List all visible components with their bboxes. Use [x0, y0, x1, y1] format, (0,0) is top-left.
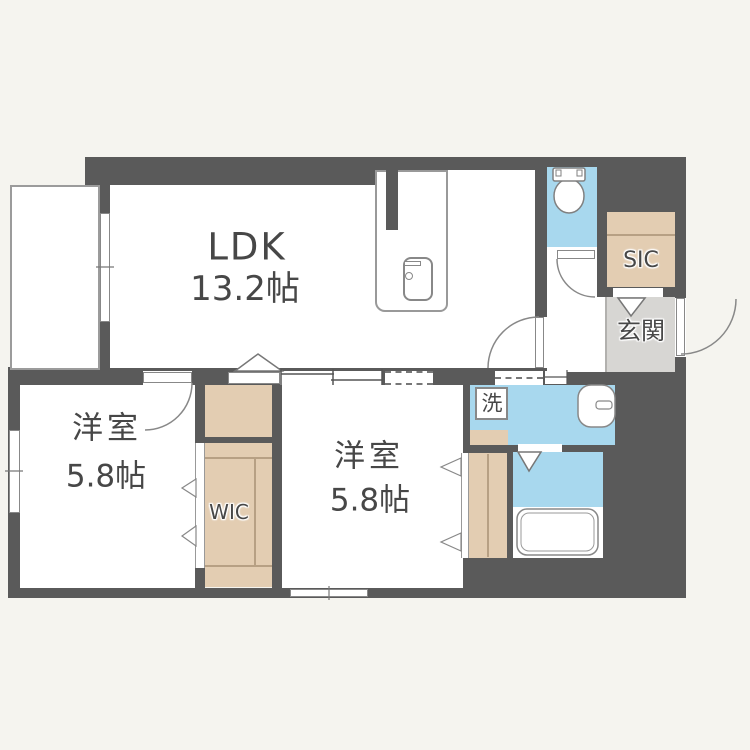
- bathtub-area: [513, 507, 603, 558]
- ldk-label: LDK: [207, 229, 286, 266]
- wall-opening-dashed: [385, 371, 433, 385]
- laundry-label: 洗: [482, 394, 503, 415]
- kitchen-faucet: [404, 261, 421, 266]
- kitchen-wall-stub: [386, 157, 398, 230]
- toilet-room-floor: [547, 167, 597, 247]
- wic-bifold-door: [195, 443, 205, 568]
- storage-door-leaf: [228, 372, 280, 384]
- sic-label: SIC: [623, 250, 659, 272]
- ldk-size-label: 13.2帖: [190, 272, 300, 306]
- wall: [195, 385, 205, 443]
- wall: [675, 157, 686, 598]
- bedroom2-size-label: 5.8帖: [330, 486, 410, 517]
- closet-bifold-door: [461, 453, 469, 558]
- wall: [195, 568, 205, 588]
- wall: [463, 558, 603, 598]
- bedroom2-label: 洋室: [334, 442, 404, 473]
- wall: [272, 367, 282, 588]
- balcony: [10, 185, 100, 370]
- closet-line: [487, 454, 489, 557]
- bathroom-floor: [513, 452, 603, 507]
- wic-label: WIC: [209, 502, 249, 522]
- kitchen-knob: [405, 272, 413, 280]
- bedroom1-label: 洋室: [72, 414, 142, 445]
- ldk-floor: [110, 185, 535, 368]
- bathroom-door-strip: [518, 444, 562, 452]
- wall: [535, 157, 547, 317]
- entrance-door-leaf: [676, 298, 685, 356]
- laundry-counter: [470, 430, 508, 445]
- wic-line: [205, 457, 272, 459]
- hallway-floor: [597, 297, 605, 372]
- hall-door-leaf: [535, 317, 544, 368]
- sliding-door-opening: [280, 371, 382, 385]
- storage-closet: [205, 385, 272, 437]
- wic-line: [205, 565, 272, 567]
- entrance-door-arc: [681, 299, 736, 354]
- sic-divider: [607, 234, 675, 236]
- bedroom1-window: [9, 430, 20, 513]
- sic-step-strip: [613, 288, 663, 297]
- small-window-symbol: [545, 371, 567, 384]
- genkan-step-line: [605, 297, 607, 372]
- bedroom1-door-leaf: [143, 372, 192, 383]
- washroom-opening-dashes: [495, 377, 543, 379]
- toilet-door-leaf: [557, 250, 595, 259]
- floor-plan: LDK 13.2帖 洋室 5.8帖 洋室 5.8帖 WIC SIC 玄関 洗: [0, 0, 750, 750]
- ldk-balcony-window: [100, 213, 110, 322]
- genkan-label: 玄関: [617, 319, 665, 343]
- hallway-floor: [547, 247, 597, 372]
- bedroom2-window: [290, 589, 368, 597]
- bedroom1-size-label: 5.8帖: [66, 462, 146, 493]
- wic-line: [254, 458, 256, 566]
